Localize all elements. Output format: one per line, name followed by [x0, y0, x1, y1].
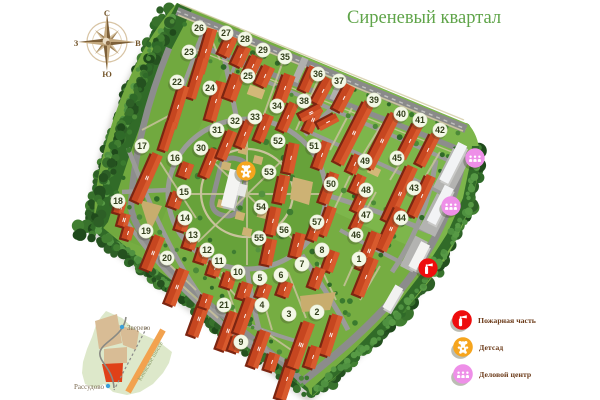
- svg-text:15: 15: [179, 187, 189, 197]
- svg-text:11: 11: [214, 256, 223, 266]
- svg-text:З: З: [74, 38, 79, 48]
- svg-text:30: 30: [196, 143, 206, 153]
- svg-text:Деловой центр: Деловой центр: [479, 370, 532, 379]
- svg-text:14: 14: [180, 213, 190, 223]
- svg-text:23: 23: [184, 47, 194, 57]
- svg-text:Сиреневый квартал: Сиреневый квартал: [347, 8, 501, 28]
- svg-text:Детсад: Детсад: [479, 343, 503, 352]
- svg-text:37: 37: [334, 76, 344, 86]
- svg-text:55: 55: [254, 233, 264, 243]
- svg-text:3: 3: [287, 309, 292, 319]
- svg-text:44: 44: [396, 213, 406, 223]
- svg-text:32: 32: [230, 116, 240, 126]
- svg-text:27: 27: [221, 28, 231, 38]
- svg-text:31: 31: [212, 125, 222, 135]
- svg-text:45: 45: [392, 153, 402, 163]
- svg-text:Зверево: Зверево: [127, 324, 151, 332]
- svg-text:47: 47: [361, 210, 371, 220]
- svg-text:34: 34: [272, 101, 282, 111]
- svg-text:25: 25: [243, 71, 253, 81]
- svg-text:21: 21: [219, 300, 229, 310]
- svg-text:7: 7: [300, 259, 305, 269]
- svg-text:42: 42: [435, 125, 445, 135]
- svg-text:57: 57: [312, 217, 322, 227]
- svg-text:10: 10: [233, 267, 243, 277]
- svg-text:Рассудово: Рассудово: [74, 383, 104, 391]
- svg-text:39: 39: [369, 95, 379, 105]
- svg-text:В: В: [135, 38, 141, 48]
- svg-text:29: 29: [258, 45, 268, 55]
- svg-text:56: 56: [279, 225, 289, 235]
- svg-text:16: 16: [170, 153, 180, 163]
- svg-text:38: 38: [299, 96, 309, 106]
- svg-text:8: 8: [320, 245, 325, 255]
- svg-text:17: 17: [137, 141, 147, 151]
- svg-text:5: 5: [258, 273, 263, 283]
- svg-text:18: 18: [113, 196, 123, 206]
- svg-text:52: 52: [273, 136, 283, 146]
- svg-text:24: 24: [205, 83, 215, 93]
- svg-text:4: 4: [260, 300, 265, 310]
- svg-text:28: 28: [240, 34, 250, 44]
- svg-text:36: 36: [313, 69, 323, 79]
- svg-text:54: 54: [256, 202, 266, 212]
- svg-text:51: 51: [309, 141, 319, 151]
- svg-text:12: 12: [202, 245, 212, 255]
- svg-text:48: 48: [361, 185, 371, 195]
- svg-text:49: 49: [360, 156, 370, 166]
- svg-text:26: 26: [194, 23, 204, 33]
- svg-text:33: 33: [250, 112, 260, 122]
- svg-text:50: 50: [326, 179, 336, 189]
- svg-text:2: 2: [315, 307, 320, 317]
- svg-text:Пожарная часть: Пожарная часть: [478, 316, 536, 325]
- svg-text:20: 20: [162, 253, 172, 263]
- svg-text:6: 6: [279, 270, 284, 280]
- svg-text:13: 13: [188, 230, 198, 240]
- svg-text:40: 40: [396, 109, 406, 119]
- svg-text:46: 46: [351, 230, 361, 240]
- svg-text:22: 22: [172, 77, 182, 87]
- svg-text:53: 53: [264, 167, 274, 177]
- svg-text:35: 35: [280, 52, 290, 62]
- svg-text:9: 9: [239, 337, 244, 347]
- svg-text:43: 43: [409, 183, 419, 193]
- svg-text:41: 41: [415, 115, 425, 125]
- svg-text:С: С: [104, 8, 110, 18]
- svg-text:19: 19: [141, 226, 151, 236]
- svg-text:Ю: Ю: [102, 69, 112, 79]
- svg-text:1: 1: [357, 254, 362, 264]
